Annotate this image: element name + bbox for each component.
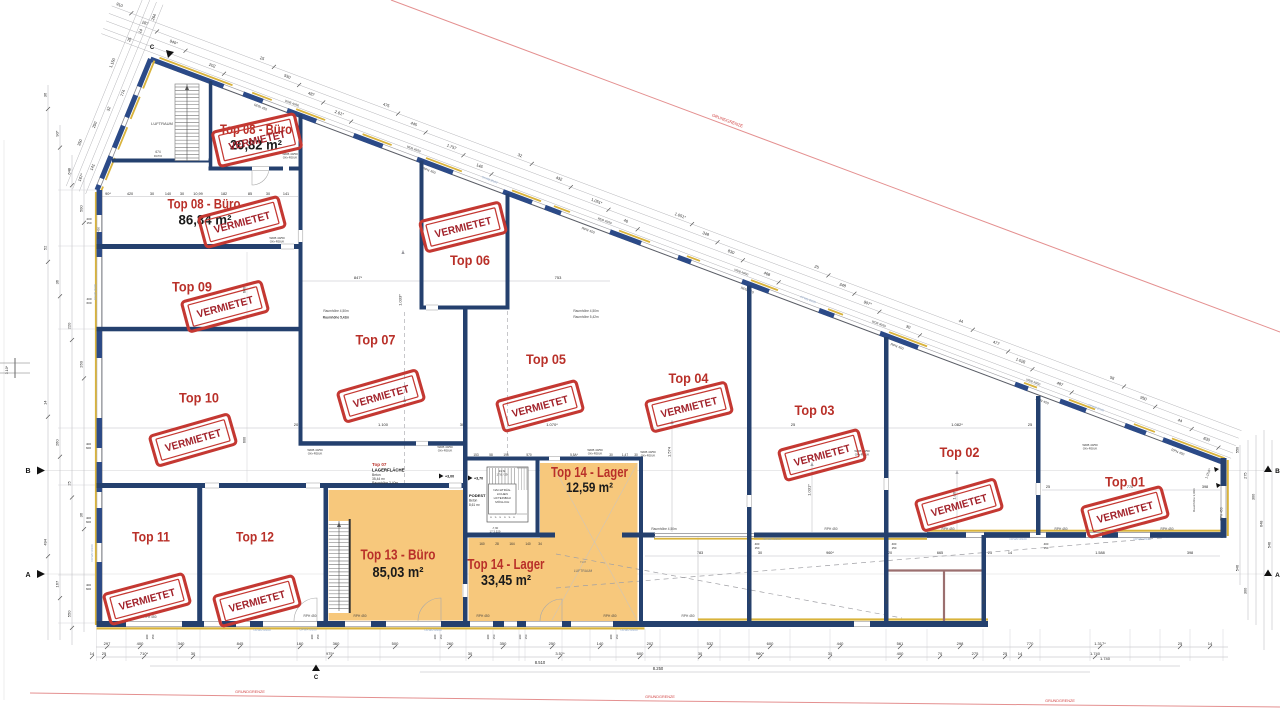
svg-text:90*: 90* — [55, 130, 60, 136]
svg-text:Top 09: Top 09 — [172, 280, 212, 295]
svg-text:494: 494 — [43, 538, 48, 545]
svg-text:960*: 960* — [756, 651, 765, 656]
svg-text:»: » — [504, 515, 506, 519]
svg-text:»: » — [490, 515, 492, 519]
svg-text:+3,00: +3,00 — [445, 475, 454, 479]
svg-text:Top 12: Top 12 — [236, 530, 274, 545]
svg-text:140: 140 — [165, 192, 171, 196]
svg-text:10,99: 10,99 — [193, 192, 203, 196]
svg-text:1,47: 1,47 — [622, 453, 628, 457]
svg-text:GRUNDGRENZE: GRUNDGRENZE — [1045, 699, 1075, 703]
svg-text:200: 200 — [145, 634, 149, 639]
svg-text:398: 398 — [1187, 551, 1193, 555]
svg-text:753: 753 — [555, 275, 562, 280]
svg-text:400: 400 — [137, 641, 144, 646]
svg-text:B: B — [25, 468, 30, 475]
svg-text:12,59 m²: 12,59 m² — [566, 480, 613, 495]
svg-text:5,5A*: 5,5A* — [570, 453, 579, 457]
svg-text:25: 25 — [988, 551, 992, 555]
svg-text:30: 30 — [634, 453, 638, 457]
svg-text:250: 250 — [549, 641, 556, 646]
svg-text:182: 182 — [221, 192, 227, 196]
svg-text:1.082*: 1.082* — [951, 422, 963, 427]
svg-text:RATIO: RATIO — [154, 154, 163, 158]
svg-text:8,61 m²: 8,61 m² — [469, 503, 480, 507]
svg-text:150: 150 — [492, 634, 496, 639]
svg-text:OFWR Ø100: OFWR Ø100 — [620, 628, 638, 632]
svg-text:600: 600 — [86, 520, 91, 524]
svg-text:OFWR Ø100: OFWR Ø100 — [93, 283, 97, 300]
svg-text:RPH 450: RPH 450 — [477, 614, 490, 618]
svg-text:RPH 450: RPH 450 — [1220, 507, 1224, 520]
svg-text:LAGERFLÄCHE: LAGERFLÄCHE — [372, 467, 405, 472]
svg-text:Raumhöhe 4,50m: Raumhöhe 4,50m — [573, 309, 599, 313]
svg-text:Top 01: Top 01 — [1105, 475, 1145, 490]
svg-text:OFWR Ø100: OFWR Ø100 — [1009, 537, 1027, 541]
svg-text:1.033*: 1.033* — [398, 294, 403, 306]
svg-text:C: C — [314, 675, 319, 681]
svg-text:8.510: 8.510 — [535, 660, 546, 665]
svg-text:OK+RDUK: OK+RDUK — [438, 449, 453, 453]
svg-text:153: 153 — [473, 453, 479, 457]
svg-text:1.100: 1.100 — [378, 422, 389, 427]
svg-text:OFWR Ø100: OFWR Ø100 — [253, 628, 271, 632]
svg-text:141: 141 — [283, 192, 289, 196]
svg-text:Top 07: Top 07 — [372, 462, 387, 467]
svg-text:500: 500 — [79, 205, 84, 212]
svg-text:17 3,529: 17 3,529 — [490, 530, 501, 534]
svg-text:1.317*: 1.317* — [1094, 641, 1106, 646]
svg-text:»: » — [508, 515, 510, 519]
svg-text:90*: 90* — [105, 192, 111, 196]
svg-text:570: 570 — [526, 453, 532, 457]
svg-text:648: 648 — [1260, 521, 1264, 527]
svg-text:OK+RDUK: OK+RDUK — [308, 452, 323, 456]
svg-text:1.588: 1.588 — [1095, 551, 1105, 555]
svg-text:OFWR Ø100: OFWR Ø100 — [763, 537, 781, 541]
svg-text:17,6 / 29: 17,6 / 29 — [497, 472, 508, 476]
svg-text:A: A — [25, 572, 30, 579]
svg-text:RPH 450: RPH 450 — [942, 527, 955, 531]
svg-text:25: 25 — [1046, 485, 1050, 489]
svg-text:Top 07: Top 07 — [356, 333, 396, 348]
svg-text:710*: 710* — [140, 651, 149, 656]
svg-text:Top 14 - Lager: Top 14 - Lager — [468, 557, 545, 573]
svg-text:150: 150 — [615, 634, 619, 639]
svg-text:150: 150 — [892, 546, 897, 550]
svg-text:600: 600 — [86, 301, 91, 305]
svg-text:8.250: 8.250 — [653, 666, 664, 671]
svg-text:14: 14 — [43, 400, 48, 405]
svg-text:260: 260 — [55, 439, 60, 446]
svg-text:20: 20 — [294, 422, 299, 427]
svg-text:150: 150 — [755, 546, 760, 550]
svg-text:30: 30 — [150, 192, 154, 196]
svg-text:Top 06: Top 06 — [450, 253, 490, 268]
svg-text:85: 85 — [248, 192, 252, 196]
svg-text:1.031*: 1.031* — [807, 484, 812, 496]
svg-text:665: 665 — [937, 551, 943, 555]
svg-text:847*: 847* — [354, 275, 363, 280]
svg-text:OK+RDUK: OK+RDUK — [641, 454, 656, 458]
svg-text:150: 150 — [86, 221, 91, 225]
svg-text:440: 440 — [837, 641, 844, 646]
svg-text:30: 30 — [758, 551, 762, 555]
svg-text:Raumhöhe 5,75m: Raumhöhe 5,75m — [748, 580, 752, 604]
svg-text:648: 648 — [67, 167, 72, 174]
svg-text:600: 600 — [86, 446, 91, 450]
svg-text:RPH 450: RPH 450 — [825, 527, 838, 531]
svg-text:150: 150 — [524, 634, 528, 639]
svg-text:150: 150 — [1044, 546, 1049, 550]
svg-text:Raumhöhe 3,90m: Raumhöhe 3,90m — [1192, 488, 1196, 512]
svg-text:300: 300 — [1244, 588, 1248, 594]
svg-text:OK+RDUK: OK+RDUK — [270, 240, 285, 244]
svg-text:OK+RDUK: OK+RDUK — [855, 453, 870, 457]
svg-text:RPH 450: RPH 450 — [354, 614, 367, 618]
svg-text:400: 400 — [897, 651, 904, 656]
svg-text:7147: 7147 — [580, 560, 587, 564]
svg-text:398: 398 — [1202, 485, 1208, 489]
svg-text:1.574: 1.574 — [667, 446, 672, 457]
svg-text:GRUNDGRENZE: GRUNDGRENZE — [235, 690, 265, 694]
svg-text:PODEST: PODEST — [469, 493, 486, 498]
svg-text:RPH 450: RPH 450 — [682, 614, 695, 618]
svg-text:160: 160 — [479, 542, 485, 546]
svg-text:»: » — [513, 515, 515, 519]
svg-text:140: 140 — [597, 641, 604, 646]
svg-text:OK+RDUK: OK+RDUK — [588, 452, 603, 456]
svg-text:550: 550 — [1236, 447, 1240, 453]
svg-text:GRUNDGRENZE: GRUNDGRENZE — [645, 695, 675, 699]
svg-text:297: 297 — [104, 641, 111, 646]
svg-text:546: 546 — [1236, 565, 1240, 571]
svg-text:200: 200 — [486, 634, 490, 639]
svg-text:RPH 450: RPH 450 — [1161, 527, 1174, 531]
svg-text:200: 200 — [518, 634, 522, 639]
svg-text:Raumhöhe 4,50m: Raumhöhe 4,50m — [651, 527, 677, 531]
svg-text:30: 30 — [609, 453, 613, 457]
svg-text:150: 150 — [316, 634, 320, 639]
svg-text:Raumhöhe 5,75m: Raumhöhe 5,75m — [982, 580, 986, 604]
svg-text:36: 36 — [79, 512, 84, 517]
svg-text:58: 58 — [489, 453, 493, 457]
svg-text:195: 195 — [503, 453, 509, 457]
svg-text:546: 546 — [1268, 542, 1272, 548]
svg-text:14: 14 — [1008, 551, 1012, 555]
svg-text:20: 20 — [888, 551, 892, 555]
svg-text:220: 220 — [67, 322, 72, 329]
svg-text:Top 10: Top 10 — [179, 391, 219, 406]
svg-text:298: 298 — [957, 641, 964, 646]
svg-text:36: 36 — [55, 279, 60, 284]
svg-text:260: 260 — [79, 360, 84, 367]
svg-text:532: 532 — [707, 641, 714, 646]
svg-text:A: A — [1275, 572, 1280, 579]
svg-text:Top 14 - Lager: Top 14 - Lager — [551, 465, 628, 481]
svg-text:200: 200 — [310, 634, 314, 639]
svg-text:OK+RDUK: OK+RDUK — [283, 156, 298, 160]
svg-text:25: 25 — [791, 422, 796, 427]
svg-text:Top 13 - Büro: Top 13 - Büro — [361, 548, 436, 564]
svg-text:770: 770 — [1027, 641, 1034, 646]
svg-text:420: 420 — [127, 192, 133, 196]
svg-text:350: 350 — [500, 641, 507, 646]
svg-text:+3,70: +3,70 — [474, 477, 483, 481]
svg-text:33,45 m²: 33,45 m² — [481, 573, 531, 589]
svg-text:Top 04: Top 04 — [669, 371, 709, 386]
svg-text:Raumhöhe 5,42m: Raumhöhe 5,42m — [573, 315, 599, 319]
svg-text:B: B — [1275, 468, 1280, 475]
svg-text:MÖGLICH: MÖGLICH — [495, 500, 509, 504]
svg-text:30: 30 — [180, 192, 184, 196]
svg-text:34: 34 — [538, 542, 542, 546]
svg-text:85,03 m²: 85,03 m² — [373, 565, 424, 581]
svg-text:1.740: 1.740 — [1100, 656, 1111, 661]
svg-text:845: 845 — [237, 641, 244, 646]
svg-text:C: C — [150, 45, 155, 51]
svg-text:340: 340 — [178, 641, 185, 646]
svg-text:275: 275 — [1244, 473, 1248, 479]
svg-text:150: 150 — [151, 634, 155, 639]
svg-text:164: 164 — [509, 542, 515, 546]
svg-text:200: 200 — [609, 634, 613, 639]
svg-text:RPH 450: RPH 450 — [604, 614, 617, 618]
svg-text:600: 600 — [86, 587, 91, 591]
svg-text:RPN 450: RPN 450 — [97, 227, 101, 240]
svg-text:550: 550 — [67, 610, 72, 617]
svg-text:52: 52 — [43, 245, 48, 250]
svg-text:150: 150 — [439, 634, 443, 639]
svg-text:36: 36 — [43, 92, 48, 97]
svg-text:260: 260 — [447, 641, 454, 646]
svg-text:28: 28 — [495, 542, 499, 546]
svg-text:167: 167 — [55, 580, 60, 587]
svg-text:»: » — [495, 515, 497, 519]
svg-text:Top 03: Top 03 — [795, 403, 835, 418]
svg-text:975*: 975* — [326, 651, 335, 656]
svg-text:Raumhöhe 5,42m: Raumhöhe 5,42m — [323, 316, 350, 320]
svg-text:Raumhöhe 4,50m: Raumhöhe 4,50m — [323, 309, 349, 313]
svg-text:25: 25 — [1028, 422, 1033, 427]
svg-text:OFWR Ø100: OFWR Ø100 — [299, 628, 317, 632]
svg-text:Top 05: Top 05 — [526, 352, 566, 367]
svg-text:Beton: Beton — [469, 499, 478, 503]
svg-text:OK+RDUK: OK+RDUK — [1083, 447, 1098, 451]
svg-text:LUFTRAUM: LUFTRAUM — [151, 121, 173, 126]
svg-text:600: 600 — [767, 641, 774, 646]
svg-text:360: 360 — [333, 641, 340, 646]
svg-text:600: 600 — [637, 651, 644, 656]
svg-text:RPH 450: RPH 450 — [1055, 527, 1068, 531]
svg-text:300: 300 — [1252, 494, 1256, 500]
svg-text:OFWR Ø100: OFWR Ø100 — [424, 628, 442, 632]
svg-text:140: 140 — [525, 542, 531, 546]
svg-text:275: 275 — [972, 651, 979, 656]
svg-text:202: 202 — [647, 641, 654, 646]
svg-text:RPH 450: RPH 450 — [304, 614, 317, 618]
svg-text:561: 561 — [897, 641, 904, 646]
svg-text:960*: 960* — [826, 551, 834, 555]
svg-text:OFWR Ø100: OFWR Ø100 — [1133, 537, 1151, 541]
svg-text:160: 160 — [297, 641, 304, 646]
svg-text:Top 11: Top 11 — [132, 530, 170, 545]
svg-text:Raumhöhe 3,40m: Raumhöhe 3,40m — [372, 481, 398, 485]
svg-text:1.070*: 1.070* — [546, 422, 558, 427]
svg-text:30: 30 — [266, 192, 270, 196]
svg-text:»: » — [499, 515, 501, 519]
svg-text:OFWR Ø100: OFWR Ø100 — [90, 544, 94, 562]
svg-text:LUFTRAUM: LUFTRAUM — [574, 569, 593, 573]
svg-text:3.52*: 3.52* — [555, 651, 565, 656]
svg-text:200: 200 — [433, 634, 437, 639]
svg-text:Top 02: Top 02 — [940, 445, 980, 460]
svg-text:600: 600 — [243, 437, 247, 443]
svg-text:Raumhöhe 5,75m: Raumhöhe 5,75m — [885, 580, 889, 604]
svg-text:500: 500 — [392, 641, 399, 646]
